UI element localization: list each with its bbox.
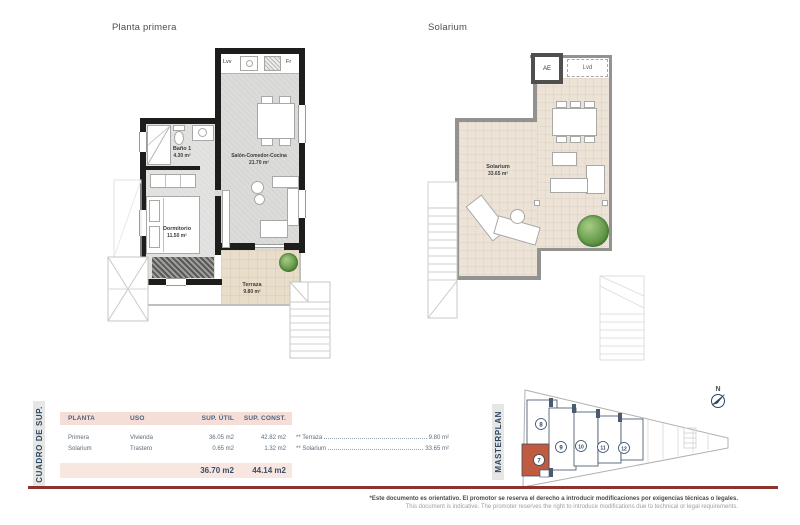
unit-10-number: 10 — [578, 445, 584, 451]
chair — [570, 101, 581, 108]
laundry-label: Lvd — [583, 65, 593, 71]
disclaimer-en: This document is indicative. The promote… — [350, 503, 738, 511]
terrace-sliding-door — [255, 244, 284, 248]
room-name: Terraza — [230, 282, 274, 289]
wall-segment — [537, 248, 612, 251]
cooktop — [264, 56, 281, 71]
cell-uso: Trastero — [130, 446, 186, 452]
exterior-stairs-left — [424, 178, 464, 324]
wall-segment — [533, 84, 537, 122]
annotation-row: ** Terraza 9.80 m² — [296, 430, 449, 441]
window — [139, 132, 147, 152]
masterplan-map: 8 7 9 10 11 12 N — [508, 378, 748, 494]
total-const: 44.14 m2 — [234, 466, 286, 475]
masterplan-section-label: MASTERPLAN — [494, 411, 503, 473]
plant-icon — [577, 215, 609, 247]
room-area: 4.30 m² — [152, 153, 212, 160]
pouf — [254, 194, 265, 205]
chair — [261, 138, 273, 146]
north-label: N — [715, 386, 720, 393]
dotted-leader — [328, 449, 423, 450]
wall-segment — [284, 243, 299, 250]
solarium-floor — [459, 122, 537, 276]
wardrobe — [150, 174, 196, 188]
wall-segment — [455, 118, 537, 122]
wall-segment — [455, 276, 541, 280]
floorplan-sheet: Planta primera Lvv Fr — [0, 0, 800, 525]
solarium-label: Solarium 33.65 m² — [475, 164, 521, 178]
wall-segment — [215, 118, 221, 190]
rug — [152, 257, 214, 278]
sofa — [287, 188, 299, 226]
annotation-label: ** Terraza — [296, 435, 322, 441]
surface-table-section: CUADRO DE SUP. — [33, 401, 45, 487]
wardrobe-divider — [165, 175, 166, 187]
col-header: USO — [130, 415, 186, 422]
room-name: Solarium — [475, 164, 521, 171]
unit-10-plot — [574, 412, 598, 466]
bed-line — [163, 198, 164, 252]
column-base — [602, 200, 608, 206]
wall-segment — [215, 196, 221, 248]
fridge-label: Fr — [286, 59, 291, 65]
wardrobe-divider — [180, 175, 181, 187]
col-header: SUP. ÚTIL — [186, 415, 234, 422]
unit-11-plot — [598, 416, 621, 463]
masterplan-section: MASTERPLAN — [492, 404, 504, 480]
total-util: 36.70 m2 — [186, 466, 234, 475]
chair — [279, 138, 291, 146]
low-table — [260, 220, 288, 238]
room-name: Baño 1 — [152, 146, 212, 153]
window — [298, 105, 306, 143]
dishwasher-label: Lvv — [223, 59, 232, 65]
sofa — [586, 165, 605, 194]
annotation-value: 9.80 m² — [429, 435, 449, 441]
wall-segment — [146, 166, 200, 170]
chair — [584, 101, 595, 108]
surface-table-section-label: CUADRO DE SUP. — [35, 406, 44, 483]
chair — [570, 136, 581, 143]
chair — [584, 136, 595, 143]
annotation-value: 33.65 m² — [425, 446, 449, 452]
window — [166, 278, 186, 286]
first-floor-title: Planta primera — [112, 22, 177, 33]
chair — [556, 136, 567, 143]
toilet — [174, 131, 184, 145]
room-area: 9.80 m² — [230, 289, 274, 296]
sink-basin — [246, 60, 253, 67]
cell-util: 36.05 m2 — [186, 435, 234, 441]
dotted-leader — [324, 438, 426, 439]
window — [298, 190, 306, 218]
cell-uso: Vivienda — [130, 435, 186, 441]
plant-icon — [279, 253, 298, 272]
table-row: Primera Vivienda 36.05 m2 42.82 m2 — [60, 432, 292, 443]
bath-label: Baño 1 4.30 m² — [152, 146, 212, 160]
cell-const: 1.32 m2 — [234, 446, 286, 452]
terrace-label: Terraza 9.80 m² — [230, 282, 274, 296]
ac-unit-label: AE — [543, 66, 551, 72]
table-header-row: PLANTA USO SUP. ÚTIL SUP. CONST. — [60, 412, 292, 425]
footer-disclaimer: *Este documento es orientativo. El promo… — [350, 495, 738, 511]
tv-cabinet — [222, 190, 230, 248]
north-compass-icon: N — [712, 386, 725, 408]
ac-unit-room: AE — [531, 53, 563, 84]
room-name: Salón-Comedor-Cocina — [226, 153, 292, 160]
pouf — [251, 181, 264, 194]
laundry-area: Lvd — [567, 59, 608, 77]
cell-const: 42.82 m2 — [234, 435, 286, 441]
exterior-stairs-right — [288, 280, 334, 362]
solarium-title: Solarium — [428, 22, 467, 33]
surface-annotations: ** Terraza 9.80 m² ** Solarium 33.65 m² — [296, 430, 449, 452]
annotation-label: ** Solarium — [296, 446, 326, 452]
unit-12-number: 12 — [621, 447, 627, 453]
col-header: PLANTA — [60, 415, 130, 422]
chair — [556, 101, 567, 108]
sofa — [272, 176, 299, 188]
dining-table — [552, 108, 597, 136]
room-area: 33.65 m² — [475, 171, 521, 178]
cell-planta: Primera — [60, 435, 130, 441]
round-table — [510, 209, 525, 224]
bedroom-label: Dormitorio 11.50 m² — [146, 226, 208, 240]
disclaimer-es: *Este documento es orientativo. El promo… — [350, 495, 738, 503]
unit-7-porch — [540, 470, 549, 477]
surface-table: PLANTA USO SUP. ÚTIL SUP. CONST. Primera… — [60, 412, 292, 478]
wall-segment — [140, 118, 221, 124]
column-base — [534, 200, 540, 206]
col-header: SUP. CONST. — [234, 415, 286, 422]
annotation-row: ** Solarium 33.65 m² — [296, 441, 449, 452]
dining-table — [257, 103, 295, 139]
exterior-stairs-right — [598, 274, 648, 362]
table-row: Solarium Trastero 0.65 m2 1.32 m2 — [60, 443, 292, 454]
footer-rule — [28, 486, 778, 489]
sofa — [550, 178, 588, 193]
cell-planta: Solarium — [60, 446, 130, 452]
wall-segment — [537, 248, 541, 280]
cell-util: 0.65 m2 — [186, 446, 234, 452]
unit-9-plot — [549, 408, 576, 470]
unit-11-number: 11 — [600, 446, 606, 452]
washbasin-bowl — [198, 128, 207, 137]
room-name: Dormitorio — [146, 226, 208, 233]
wall-segment — [609, 55, 612, 251]
wall-segment — [299, 48, 305, 253]
side-table — [552, 152, 577, 166]
terrace-edge-line — [148, 304, 300, 306]
table-totals-row: 36.70 m2 44.14 m2 — [60, 463, 292, 478]
room-area: 11.50 m² — [146, 233, 208, 240]
room-area: 21.70 m² — [226, 160, 292, 167]
living-label: Salón-Comedor-Cocina 21.70 m² — [226, 153, 292, 166]
exterior-stairs-left — [106, 178, 152, 324]
